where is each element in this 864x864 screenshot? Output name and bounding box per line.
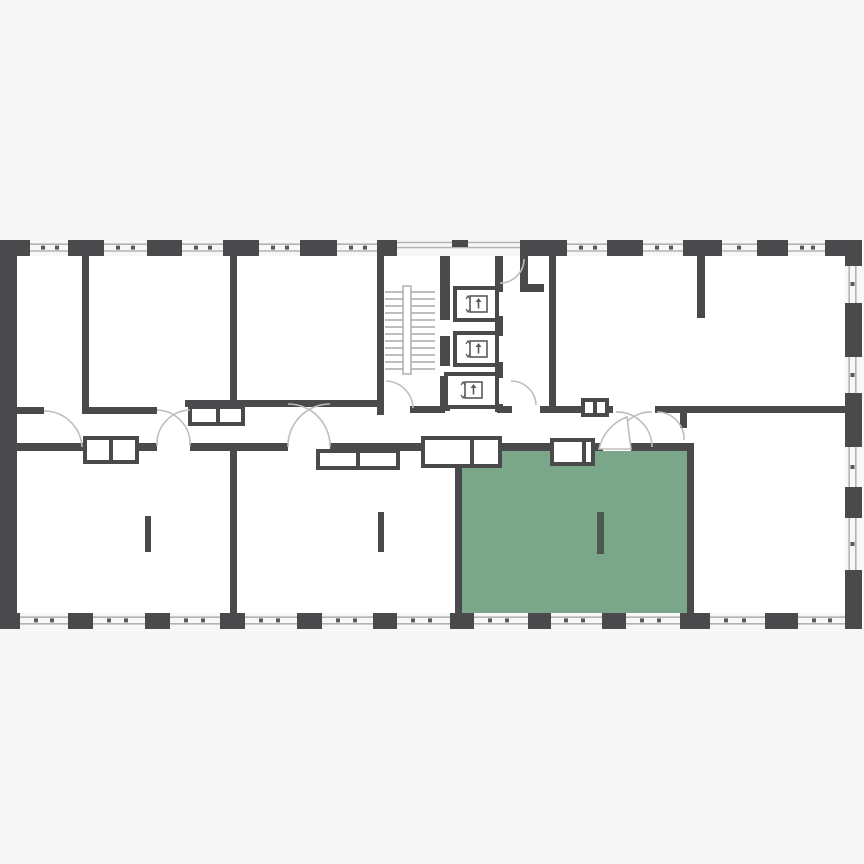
elevator-2 — [455, 333, 497, 365]
floor-plan — [0, 0, 864, 864]
stair-stringer — [403, 286, 411, 374]
elevator-3 — [446, 374, 497, 407]
column-marker — [378, 512, 384, 552]
floor-interior — [17, 256, 845, 613]
column-marker-selected-unit — [597, 512, 604, 554]
selected-unit[interactable] — [462, 451, 687, 613]
elevator-1 — [455, 288, 497, 320]
column-marker — [145, 516, 151, 552]
elevators — [446, 288, 497, 407]
